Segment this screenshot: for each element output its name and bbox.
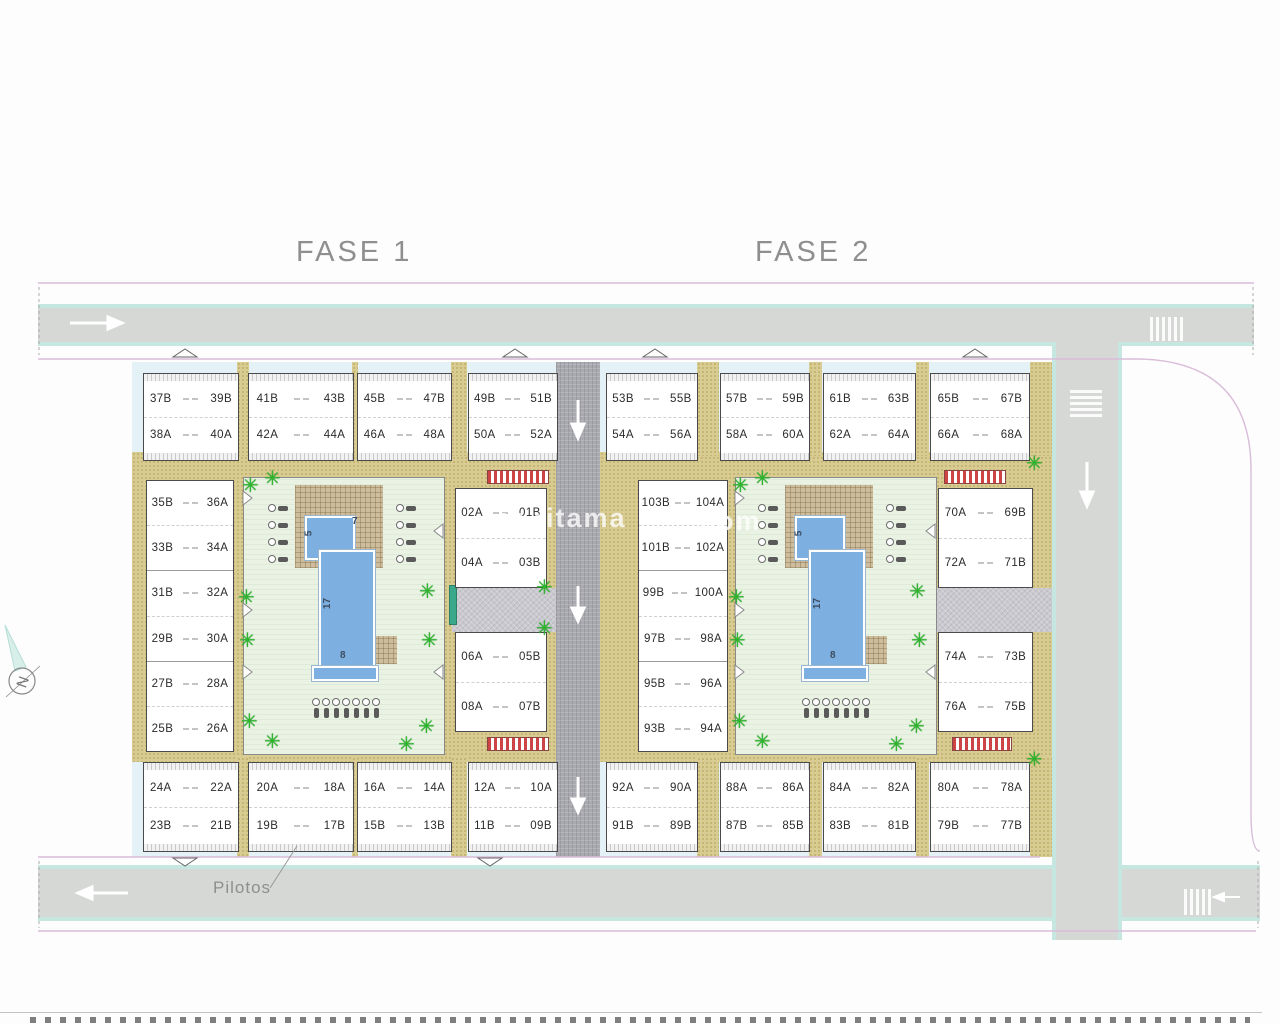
unit-label: 67B (1001, 393, 1023, 405)
watermark-text: com (700, 506, 762, 537)
unit-label: 03B (519, 557, 541, 569)
sun-lounger-icon (396, 555, 416, 563)
unit-label: 39B (210, 393, 232, 405)
unit-label: 64A (888, 429, 910, 441)
unit-label: 11B (474, 820, 495, 832)
sun-lounger-icon (812, 698, 820, 718)
area-ticks (493, 562, 508, 564)
palm-tree-icon: ✳ (754, 732, 771, 752)
fase2-pool-step (802, 666, 868, 681)
unit-label: 36A (207, 497, 229, 509)
unit-label: 06A (461, 651, 483, 663)
unit-label: 97B (644, 633, 666, 645)
sun-lounger-icon (886, 555, 906, 563)
area-ticks (397, 398, 412, 400)
compass-icon: N (5, 625, 40, 697)
area-ticks (644, 398, 659, 400)
sun-lounger-icon (268, 538, 288, 546)
path-strip (916, 757, 929, 857)
unit-block: 74A73B76A75B (938, 632, 1033, 732)
unit-label: 100A (695, 587, 723, 599)
unit-label: 89B (670, 820, 692, 832)
area-ticks (973, 398, 988, 400)
unit-label: 102A (696, 542, 724, 554)
area-ticks (675, 683, 690, 685)
unit-label: 74A (945, 651, 967, 663)
unit-label: 37B (150, 393, 172, 405)
sun-lounger-icon (802, 698, 810, 718)
area-ticks (644, 787, 659, 789)
area-ticks (978, 656, 993, 658)
unit-label: 22A (210, 782, 232, 794)
unit-label: 29B (152, 633, 174, 645)
area-ticks (757, 825, 772, 827)
unit-label: 43B (324, 393, 346, 405)
sun-lounger-icon (332, 698, 340, 718)
palm-tree-icon: ✳ (729, 631, 746, 651)
unit-label: 18A (324, 782, 346, 794)
area-ticks (183, 787, 198, 789)
sun-lounger-icon (842, 698, 850, 718)
area-ticks (675, 728, 690, 730)
right-road (1052, 342, 1122, 940)
unit-label: 15B (364, 820, 386, 832)
unit-label: 46A (364, 429, 386, 441)
area-ticks (757, 787, 772, 789)
sun-lounger-icon (362, 698, 370, 718)
unit-block: 92A90A91B89B (606, 762, 698, 852)
unit-label: 32A (207, 587, 229, 599)
unit-label: 19B (257, 820, 279, 832)
unit-block: 12A10A11B09B (468, 762, 558, 852)
unit-label: 78A (1001, 782, 1023, 794)
area-ticks (183, 825, 198, 827)
unit-block: 65B67B66A68A (930, 373, 1030, 461)
fase2-deck-square (863, 636, 887, 664)
sun-lounger-icon (862, 698, 870, 718)
area-ticks (973, 787, 988, 789)
area-ticks (183, 683, 198, 685)
palm-tree-icon: ✳ (1026, 750, 1043, 770)
area-ticks (505, 787, 520, 789)
south-boundary-line (0, 1012, 1262, 1013)
palm-tree-icon: ✳ (421, 631, 438, 651)
palm-tree-icon: ✳ (754, 469, 771, 489)
unit-label: 101B (642, 542, 670, 554)
palm-tree-icon: ✳ (909, 582, 926, 602)
unit-label: 66A (938, 429, 960, 441)
area-ticks (675, 547, 690, 549)
palm-tree-icon: ✳ (242, 476, 259, 496)
unit-block: 53B55B54A56A (606, 373, 698, 461)
unit-label: 70A (945, 507, 967, 519)
path-strip (1030, 362, 1052, 456)
unit-label: 54A (612, 429, 634, 441)
area-ticks (644, 825, 659, 827)
unit-block: 37B39B38A40A (143, 373, 239, 461)
svg-text:N: N (13, 674, 33, 690)
unit-block: 84A82A83B81B (823, 762, 916, 852)
sun-lounger-icon (822, 698, 830, 718)
pergola (944, 470, 1006, 484)
unit-label: 71B (1005, 557, 1027, 569)
area-ticks (862, 398, 877, 400)
area-ticks (973, 434, 988, 436)
sun-lounger-icon (352, 698, 360, 718)
unit-block: 24A22A23B21B (143, 762, 239, 852)
palm-tree-icon: ✳ (536, 619, 553, 639)
palm-tree-icon: ✳ (398, 735, 415, 755)
unit-label: 57B (726, 393, 748, 405)
unit-label: 59B (782, 393, 804, 405)
area-ticks (973, 825, 988, 827)
path-strip (697, 362, 719, 456)
unit-label: 99B (643, 587, 665, 599)
pool-dim: 17 (812, 598, 823, 609)
palm-tree-icon: ✳ (264, 732, 281, 752)
sun-lounger-icon (396, 538, 416, 546)
unit-label: 80A (938, 782, 960, 794)
unit-label: 38A (150, 429, 172, 441)
unit-label: 75B (1005, 701, 1027, 713)
unit-label: 26A (207, 723, 229, 735)
unit-label: 96A (700, 678, 722, 690)
unit-label: 72A (945, 557, 967, 569)
unit-label: 13B (424, 820, 446, 832)
unit-block: 49B51B50A52A (468, 373, 558, 461)
area-ticks (294, 398, 309, 400)
unit-label: 42A (257, 429, 279, 441)
area-ticks (493, 706, 508, 708)
unit-label: 83B (829, 820, 851, 832)
area-ticks (397, 434, 412, 436)
unit-label: 98A (700, 633, 722, 645)
sun-lounger-icon (886, 504, 906, 512)
unit-label: 40A (210, 429, 232, 441)
palm-tree-icon: ✳ (264, 469, 281, 489)
unit-label: 41B (257, 393, 279, 405)
unit-label: 84A (829, 782, 851, 794)
fase2-entrance-path (932, 588, 1052, 632)
unit-label: 48A (424, 429, 446, 441)
area-ticks (757, 398, 772, 400)
palm-tree-icon: ✳ (1026, 454, 1043, 474)
sun-lounger-icon (312, 698, 320, 718)
unit-label: 55B (670, 393, 692, 405)
palm-tree-icon: ✳ (911, 631, 928, 651)
unit-block: 80A78A79B77B (930, 762, 1030, 852)
unit-label: 86A (782, 782, 804, 794)
unit-label: 28A (207, 678, 229, 690)
unit-label: 60A (782, 429, 804, 441)
path-strip (809, 757, 822, 857)
unit-block: 41B43B42A44A (248, 373, 354, 461)
area-ticks (183, 502, 198, 504)
fase2-pool-main (809, 550, 865, 670)
sun-lounger-icon (268, 555, 288, 563)
area-ticks (505, 398, 520, 400)
sun-lounger-icon (832, 698, 840, 718)
sun-lounger-icon (886, 538, 906, 546)
unit-label: 24A (150, 782, 172, 794)
area-ticks (978, 512, 993, 514)
unit-label: 35B (152, 497, 174, 509)
unit-label: 73B (1005, 651, 1027, 663)
pool-dim: 5 (303, 531, 314, 537)
area-ticks (757, 434, 772, 436)
unit-label: 45B (364, 393, 386, 405)
unit-label: 02A (461, 507, 483, 519)
area-ticks (294, 434, 309, 436)
path-strip (916, 362, 929, 456)
south-boundary-hatch (30, 1017, 1250, 1023)
area-ticks (505, 825, 520, 827)
unit-label: 25B (152, 723, 174, 735)
unit-label: 82A (888, 782, 910, 794)
unit-label: 27B (152, 678, 174, 690)
hedge (449, 585, 457, 625)
palm-tree-icon: ✳ (732, 476, 749, 496)
unit-label: 65B (938, 393, 960, 405)
area-ticks (672, 592, 687, 594)
unit-label: 05B (519, 651, 541, 663)
unit-label: 81B (888, 820, 910, 832)
area-ticks (978, 562, 993, 564)
unit-label: 14A (424, 782, 446, 794)
area-ticks (644, 434, 659, 436)
area-ticks (183, 398, 198, 400)
path-strip (1030, 757, 1052, 857)
sun-lounger-icon (268, 504, 288, 512)
unit-label: 34A (207, 542, 229, 554)
unit-label: 79B (938, 820, 960, 832)
unit-label: 94A (700, 723, 722, 735)
unit-block: 70A69B72A71B (938, 488, 1033, 588)
unit-label: 17B (324, 820, 346, 832)
fase1-pool-main (319, 550, 375, 670)
area-ticks (294, 825, 309, 827)
unit-block: 45B47B46A48A (357, 373, 452, 461)
area-ticks (183, 638, 198, 640)
unit-label: 69B (1005, 507, 1027, 519)
unit-label: 91B (612, 820, 634, 832)
unit-label: 85B (782, 820, 804, 832)
unit-label: 68A (1001, 429, 1023, 441)
unit-label: 77B (1001, 820, 1023, 832)
fase1-title: FASE 1 (296, 236, 412, 269)
unit-label: 04A (461, 557, 483, 569)
unit-label: 09B (530, 820, 552, 832)
pilotos-label: Pilotos (213, 878, 271, 898)
area-ticks (397, 787, 412, 789)
palm-tree-icon: ✳ (418, 717, 435, 737)
palm-tree-icon: ✳ (888, 735, 905, 755)
unit-label: 92A (612, 782, 634, 794)
pool-dim: 17 (322, 598, 333, 609)
unit-label: 49B (474, 393, 496, 405)
unit-label: 53B (612, 393, 634, 405)
area-ticks (505, 434, 520, 436)
area-ticks (397, 825, 412, 827)
path-strip (809, 362, 822, 456)
fase2-title: FASE 2 (755, 236, 871, 269)
unit-label: 61B (829, 393, 851, 405)
area-ticks (183, 547, 198, 549)
palm-tree-icon: ✳ (238, 588, 255, 608)
sun-lounger-icon (396, 504, 416, 512)
unit-label: 33B (152, 542, 174, 554)
palm-tree-icon: ✳ (731, 712, 748, 732)
unit-block: 57B59B58A60A (720, 373, 810, 461)
unit-label: 88A (726, 782, 748, 794)
fase1-deck-square (373, 636, 397, 664)
unit-label: 10A (530, 782, 552, 794)
sun-lounger-icon (322, 698, 330, 718)
palm-tree-icon: ✳ (241, 712, 258, 732)
sun-lounger-icon (372, 698, 380, 718)
unit-block: 06A05B08A07B (455, 632, 547, 732)
unit-block: 20A18A19B17B (248, 762, 354, 852)
area-ticks (493, 656, 508, 658)
pool-dim: 8 (830, 650, 836, 661)
unit-label: 51B (530, 393, 552, 405)
path-strip (451, 757, 467, 857)
area-ticks (862, 787, 877, 789)
sun-lounger-icon (396, 521, 416, 529)
area-ticks (675, 502, 690, 504)
unit-block: 88A86A87B85B (720, 762, 810, 852)
fase1-pool-step (312, 666, 378, 681)
area-ticks (183, 728, 198, 730)
pergola (952, 737, 1012, 751)
unit-label: 103B (642, 497, 670, 509)
unit-block: 35B36A33B34A31B32A29B30A27B28A25B26A (146, 480, 234, 752)
area-ticks (675, 638, 690, 640)
unit-block: 16A14A15B13B (357, 762, 452, 852)
path-strip (697, 757, 719, 857)
unit-label: 47B (424, 393, 446, 405)
unit-label: 76A (945, 701, 967, 713)
palm-tree-icon: ✳ (239, 631, 256, 651)
unit-label: 21B (210, 820, 232, 832)
unit-label: 52A (530, 429, 552, 441)
top-road (38, 304, 1254, 346)
unit-label: 12A (474, 782, 496, 794)
unit-label: 62A (829, 429, 851, 441)
area-ticks (294, 787, 309, 789)
unit-label: 56A (670, 429, 692, 441)
palm-tree-icon: ✳ (728, 588, 745, 608)
pergola (487, 737, 549, 751)
unit-label: 58A (726, 429, 748, 441)
path-strip (451, 362, 467, 456)
unit-label: 90A (670, 782, 692, 794)
pool-dim: 5 (793, 531, 804, 537)
center-road (556, 362, 600, 857)
unit-label: 23B (150, 820, 172, 832)
unit-label: 16A (364, 782, 386, 794)
palm-tree-icon: ✳ (908, 717, 925, 737)
unit-label: 07B (519, 701, 541, 713)
unit-label: 30A (207, 633, 229, 645)
area-ticks (183, 592, 198, 594)
sun-lounger-icon (852, 698, 860, 718)
unit-label: 93B (644, 723, 666, 735)
sun-lounger-icon (758, 555, 778, 563)
sun-lounger-icon (886, 521, 906, 529)
unit-label: 95B (644, 678, 666, 690)
palm-tree-icon: ✳ (419, 582, 436, 602)
unit-block: 61B63B62A64A (823, 373, 916, 461)
unit-label: 44A (324, 429, 346, 441)
watermark-text: w.ritama (502, 503, 627, 534)
sun-lounger-icon (758, 538, 778, 546)
sun-lounger-icon (342, 698, 350, 718)
sun-lounger-icon (268, 521, 288, 529)
area-ticks (862, 825, 877, 827)
pool-dim: 8 (340, 650, 346, 661)
area-ticks (862, 434, 877, 436)
unit-label: 50A (474, 429, 496, 441)
site-plan: FASE 1 FASE 2 5 7 17 8 5 17 8 (0, 0, 1280, 1024)
pool-dim: 7 (352, 516, 358, 527)
unit-label: 87B (726, 820, 748, 832)
unit-label: 20A (257, 782, 279, 794)
palm-tree-icon: ✳ (536, 578, 553, 598)
unit-label: 63B (888, 393, 910, 405)
area-ticks (183, 434, 198, 436)
unit-label: 31B (152, 587, 174, 599)
pergola (487, 470, 549, 484)
unit-label: 08A (461, 701, 483, 713)
area-ticks (978, 706, 993, 708)
